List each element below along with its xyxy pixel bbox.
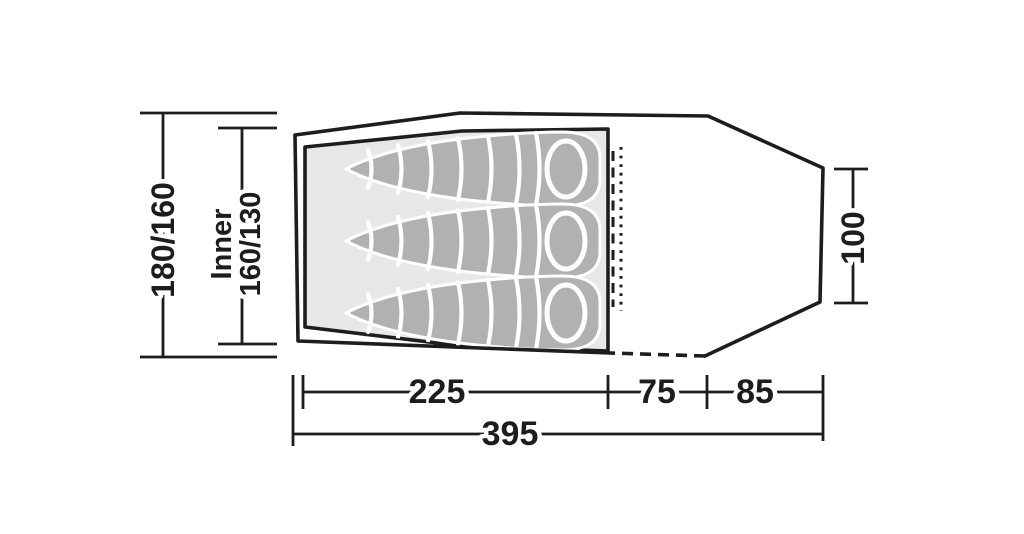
dimension-right-depth-label: 100 (835, 211, 871, 264)
dimension-right-depth: 100 (834, 169, 871, 303)
dimension-mid-length-label: 75 (638, 373, 676, 411)
dimension-left-outer-label: 180/160 (145, 182, 181, 298)
dimension-end-length-label: 85 (736, 373, 774, 411)
tent-floorplan-diagram: 180/160 Inner 160/130 100 225 75 85 395 (0, 0, 1024, 534)
dimension-bottom-total: 395 (293, 415, 823, 453)
dimension-inner-length-label: 225 (409, 373, 466, 411)
flysheet-door-dashed-edge (610, 353, 705, 356)
tent-floorplan-page: 180/160 Inner 160/130 100 225 75 85 395 (0, 0, 1024, 534)
dimension-inner-word-label: Inner (206, 209, 238, 280)
dimension-left-inner: Inner 160/130 (206, 128, 277, 344)
dimension-total-length-label: 395 (482, 415, 539, 453)
dimension-inner-value-label: 160/130 (235, 192, 267, 297)
sleeping-bags-group (346, 132, 600, 350)
